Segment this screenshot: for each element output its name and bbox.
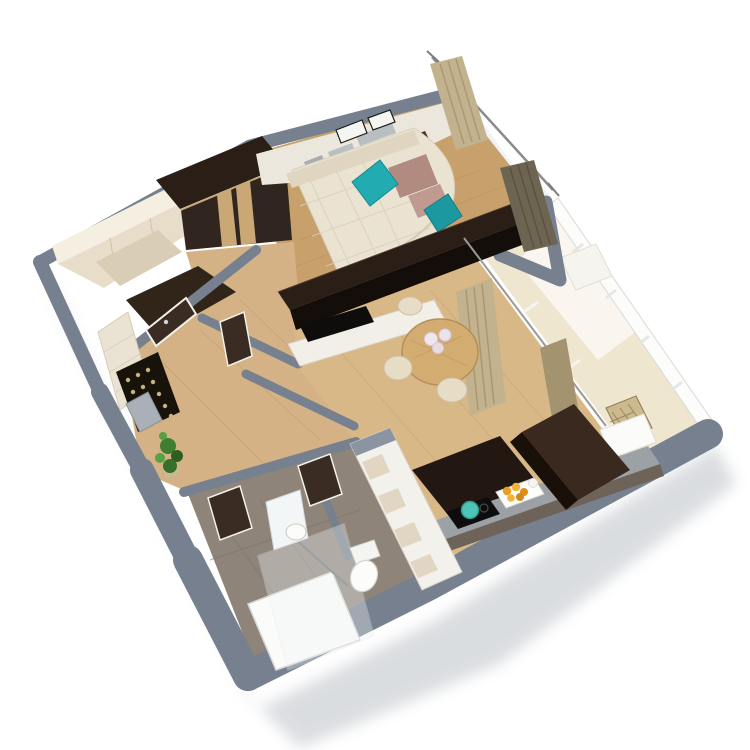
dining-chair-left [384, 356, 412, 380]
dining-chair-bottom [437, 378, 467, 402]
wall-sw-upper [40, 262, 100, 392]
cup-white [529, 479, 538, 488]
orange-5 [516, 493, 524, 501]
apartment-render-stage [0, 0, 750, 750]
orange-4 [507, 494, 515, 502]
bathroom-sink [286, 524, 306, 540]
orange-2 [512, 483, 520, 491]
pot-teal [462, 502, 479, 519]
entrance-door-handle [164, 320, 168, 324]
orange-1 [503, 487, 511, 495]
dining-chair-back [398, 297, 422, 315]
apartment-floorplan-svg [0, 0, 750, 750]
flowers-2 [439, 329, 451, 341]
flowers-3 [433, 343, 444, 354]
